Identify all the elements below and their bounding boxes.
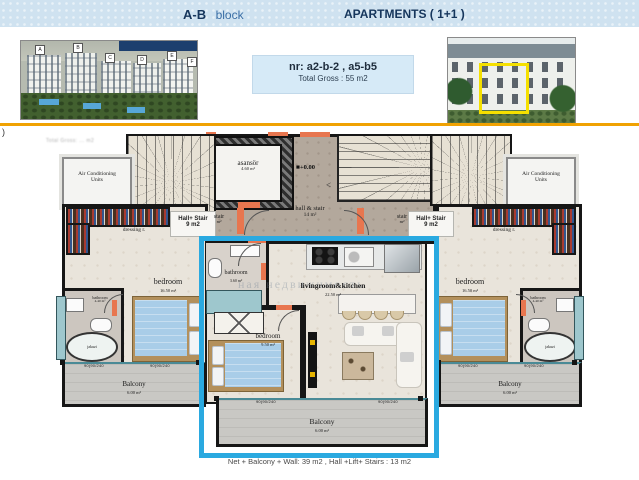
balcony-label: Balcony bbox=[122, 380, 145, 388]
window-dimension: 90(90/240 bbox=[84, 363, 104, 368]
sink bbox=[556, 298, 574, 312]
highlight-unit-box bbox=[479, 63, 529, 114]
jacuzzi: jakuzi bbox=[524, 332, 576, 362]
apartment-info-box: nr: a2-b-2 , a5-b5 Total Gross : 55 m2 bbox=[252, 55, 414, 94]
bed-pillow bbox=[440, 303, 452, 327]
right-balcony: Balcony 6.00 m² bbox=[438, 362, 582, 407]
bed bbox=[132, 296, 204, 362]
door-jamb bbox=[112, 300, 117, 316]
photo-banner bbox=[119, 41, 197, 51]
room-name: bedroom bbox=[154, 277, 182, 286]
bed-pillow bbox=[440, 331, 452, 355]
dressing-label: dressing r. bbox=[478, 228, 530, 234]
block-label-d: D bbox=[137, 55, 147, 65]
jacuzzi: jakuzi bbox=[66, 332, 118, 362]
bed-blanket bbox=[135, 300, 187, 356]
block-label-f: F bbox=[187, 57, 197, 67]
level-value: +0.00 bbox=[300, 164, 315, 171]
wardrobe bbox=[66, 223, 90, 255]
window-dimension: 90(90/240 bbox=[524, 363, 544, 368]
dressing-label: dressing r. bbox=[108, 228, 160, 234]
block-label-c: C bbox=[105, 53, 115, 63]
hall-stair-label-right: Hall+ Stair 9 m2 bbox=[408, 211, 454, 237]
elevator: asansör 4.60 m² bbox=[214, 144, 282, 202]
door-jamb bbox=[521, 300, 526, 316]
balcony-post bbox=[60, 360, 65, 365]
hall-area: 14 m² bbox=[282, 213, 338, 219]
building-b bbox=[65, 53, 97, 97]
pool bbox=[83, 103, 101, 109]
window-dimension: 90(90/240 bbox=[150, 363, 170, 368]
palm-tree bbox=[544, 76, 576, 125]
margin-mark: ) bbox=[2, 127, 5, 137]
plan-sheet: A-B block APARTMENTS ( 1+1 ) A B C D E F… bbox=[0, 0, 639, 480]
total-gross: Total Gross : 55 m2 bbox=[253, 74, 413, 83]
site-photo: A B C D E F bbox=[20, 40, 198, 120]
stair-label-left: stair m² bbox=[207, 214, 231, 225]
left-bedroom-label: bedroom 16.50 m² bbox=[138, 272, 198, 294]
sink bbox=[66, 298, 84, 312]
vegetation bbox=[21, 93, 197, 119]
jacuzzi-label: jakuzi bbox=[526, 344, 574, 349]
toilet bbox=[528, 318, 550, 332]
hall-word: hall & stair bbox=[295, 205, 324, 212]
right-stairs bbox=[430, 134, 512, 206]
toilet bbox=[90, 318, 112, 332]
block-label-b: B bbox=[73, 43, 83, 53]
ac-label: Air Conditioning Units bbox=[508, 172, 574, 184]
room-area: 16.50 m² bbox=[440, 289, 500, 294]
ac-units-left: Air Conditioning Units bbox=[62, 157, 132, 207]
wardrobe bbox=[552, 223, 576, 255]
stair-direction-arrow: < bbox=[326, 180, 331, 190]
bed-blanket bbox=[453, 300, 505, 356]
block-label-e: E bbox=[167, 51, 177, 61]
balcony-area: 6.00 m² bbox=[441, 391, 579, 396]
block-label-a: A bbox=[35, 45, 45, 55]
window bbox=[56, 296, 66, 360]
hall-label: hall & stair 14 m² bbox=[282, 206, 338, 219]
balcony-label: Balcony bbox=[498, 380, 521, 388]
door-jamb bbox=[237, 208, 244, 234]
area-summary-note: Net + Balcony + Wall: 39 m2 , Hall +Lift… bbox=[0, 457, 639, 466]
palm-tree bbox=[447, 68, 476, 120]
balcony-area: 6.00 m² bbox=[65, 391, 203, 396]
pool bbox=[39, 99, 59, 105]
room-area: 16.50 m² bbox=[138, 289, 198, 294]
jacuzzi-label: jakuzi bbox=[68, 344, 116, 349]
facade-photo bbox=[447, 37, 576, 125]
ac-label: Air Conditioning Units bbox=[64, 172, 130, 184]
building-a bbox=[27, 55, 61, 95]
level-mark: ■+0.00 bbox=[296, 164, 315, 171]
block-name: A-B bbox=[183, 7, 206, 22]
elevator-area: 4.60 m² bbox=[216, 167, 280, 172]
roof bbox=[448, 44, 575, 58]
window-dimension: 90(90/240 bbox=[458, 363, 478, 368]
balcony-post bbox=[572, 360, 577, 365]
block-word: block bbox=[216, 8, 244, 22]
page-title: APARTMENTS ( 1+1 ) bbox=[344, 7, 465, 21]
ac-units-right: Air Conditioning Units bbox=[506, 157, 576, 207]
block-title: A-B block bbox=[183, 6, 244, 24]
left-balcony: Balcony 6.00 m² bbox=[62, 362, 206, 407]
pool bbox=[127, 107, 145, 113]
room-name: bedroom bbox=[456, 277, 484, 286]
door-jamb bbox=[300, 132, 330, 137]
stair-area: m² bbox=[207, 220, 231, 225]
window bbox=[574, 296, 584, 360]
right-bedroom-label: bedroom 16.50 m² bbox=[440, 272, 500, 294]
bed bbox=[436, 296, 508, 362]
hall-stair-line2: 9 m2 bbox=[409, 222, 453, 228]
highlighted-unit-frame bbox=[199, 236, 439, 458]
apartment-numbers: nr: a2-b-2 , a5-b5 bbox=[253, 61, 413, 73]
central-stairs bbox=[337, 136, 430, 202]
divider-rule bbox=[0, 123, 639, 126]
header-band bbox=[0, 0, 639, 27]
